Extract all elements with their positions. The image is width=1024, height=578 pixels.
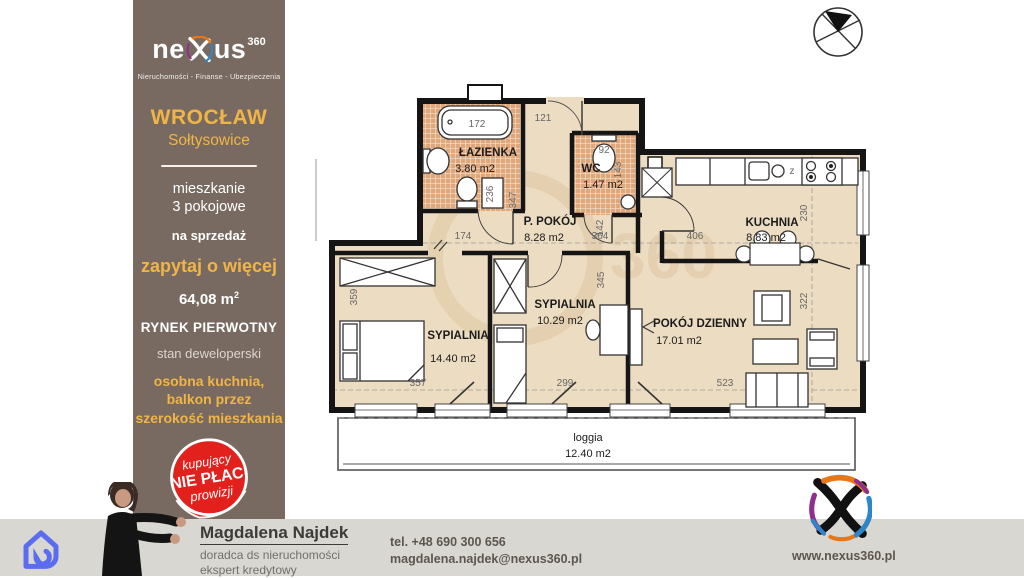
room-area-wc: 1.47 m2 — [583, 179, 623, 191]
room-label-bedroom-small: SYPIALNIA — [534, 299, 595, 311]
room-area-bedroom-large: 14.40 m2 — [430, 353, 476, 365]
agent-name: Magdalena Najdek — [200, 523, 348, 545]
dim-92: 92 — [598, 145, 610, 156]
listing-type: mieszkanie 3 pokojowe — [133, 180, 285, 216]
feature-line3: szerokość mieszkania — [133, 409, 285, 427]
room-label-living: POKÓJ DZIENNY — [653, 317, 747, 330]
listing-ask: zapytaj o więcej — [133, 256, 285, 277]
listing-features: osobna kuchnia, balkon przez szerokość m… — [133, 372, 285, 427]
listing-area: 64,08 m2 — [133, 290, 285, 308]
room-area-bathroom: 3.80 m2 — [455, 163, 495, 175]
dim-299: 299 — [557, 378, 574, 389]
agent-role1: doradca ds nieruchomości — [200, 548, 348, 563]
dim-121: 121 — [535, 113, 552, 124]
compass-icon — [810, 4, 866, 60]
logo-360: 360 — [247, 36, 265, 48]
listing-market: RYNEK PIERWOTNY — [133, 320, 285, 335]
room-label-loggia: loggia — [573, 432, 603, 444]
agent-email: magdalena.najdek@nexus360.pl — [390, 551, 582, 568]
room-area-living: 17.01 m2 — [656, 335, 702, 347]
agent-phone: tel. +48 690 300 656 — [390, 534, 582, 551]
listing-city: WROCŁAW — [133, 106, 285, 130]
listing-area-sup: 2 — [234, 290, 239, 300]
real-estate-flyer: ne us 360 Nieruchomości - Finanse - Ubez… — [0, 0, 1024, 576]
room-area-loggia: 12.40 m2 — [565, 448, 611, 460]
feature-line1: osobna kuchnia, — [133, 372, 285, 390]
nexus-k-logo-footer — [808, 468, 872, 548]
logo-text-suffix: us — [214, 34, 247, 65]
website-url: www.nexus360.pl — [792, 549, 896, 563]
listing-type-line2: 3 pokojowe — [133, 198, 285, 216]
divider-line — [161, 165, 257, 167]
brand-logo: ne us 360 — [133, 34, 285, 65]
dim-230: 230 — [799, 204, 810, 221]
dim-236: 236 — [485, 185, 496, 202]
listing-state: stan deweloperski — [133, 346, 285, 361]
listing-type-line1: mieszkanie — [133, 180, 285, 198]
room-area-hall: 8.28 m2 — [524, 232, 564, 244]
room-area-kitchen: 8.83 m2 — [746, 232, 786, 244]
logo-text-prefix: ne — [152, 34, 185, 65]
dim-345: 345 — [596, 271, 607, 288]
agent-photo — [88, 482, 206, 576]
floor-plan: loggia 12.40 m2 360 — [310, 73, 876, 483]
sidebar-panel: ne us 360 Nieruchomości - Finanse - Ubez… — [133, 0, 285, 519]
dim-357: 357 — [410, 378, 427, 389]
dim-142: 142 — [595, 219, 606, 236]
room-area-bedroom-small: 10.29 m2 — [537, 315, 583, 327]
agent-roles: doradca ds nieruchomości ekspert kredyto… — [200, 548, 348, 578]
contact-block: tel. +48 690 300 656 magdalena.najdek@ne… — [390, 534, 582, 568]
dim-stove-z: z — [790, 166, 795, 177]
dim-143: 143 — [613, 161, 624, 178]
dim-322: 322 — [799, 292, 810, 309]
dim-359: 359 — [349, 288, 360, 305]
house-logo-icon — [16, 523, 66, 573]
listing-area-value: 64,08 m — [179, 291, 234, 308]
dim-523: 523 — [717, 378, 734, 389]
feature-line2: balkon przez — [133, 390, 285, 408]
brand-tagline: Nieruchomości - Finanse - Ubezpieczenia — [133, 72, 285, 81]
dim-406: 406 — [687, 231, 704, 242]
room-label-kitchen: KUCHNIA — [745, 217, 798, 229]
right-windows — [857, 171, 869, 361]
listing-offer: na sprzedaż — [133, 228, 285, 243]
dim-347: 347 — [508, 191, 519, 208]
agent-block: Magdalena Najdek doradca ds nieruchomośc… — [200, 523, 348, 578]
dim-174: 174 — [455, 231, 472, 242]
room-label-hall: P. POKÓJ — [524, 215, 577, 228]
room-label-bathroom: ŁAZIENKA — [459, 147, 517, 159]
dim-172: 172 — [469, 119, 486, 130]
listing-district: Sołtysowice — [133, 132, 285, 150]
nexus-k-icon — [186, 36, 213, 63]
room-label-wc: WC — [581, 163, 600, 175]
room-label-bedroom-large: SYPIALNIA — [427, 330, 488, 342]
room-loggia: loggia 12.40 m2 — [338, 418, 855, 470]
